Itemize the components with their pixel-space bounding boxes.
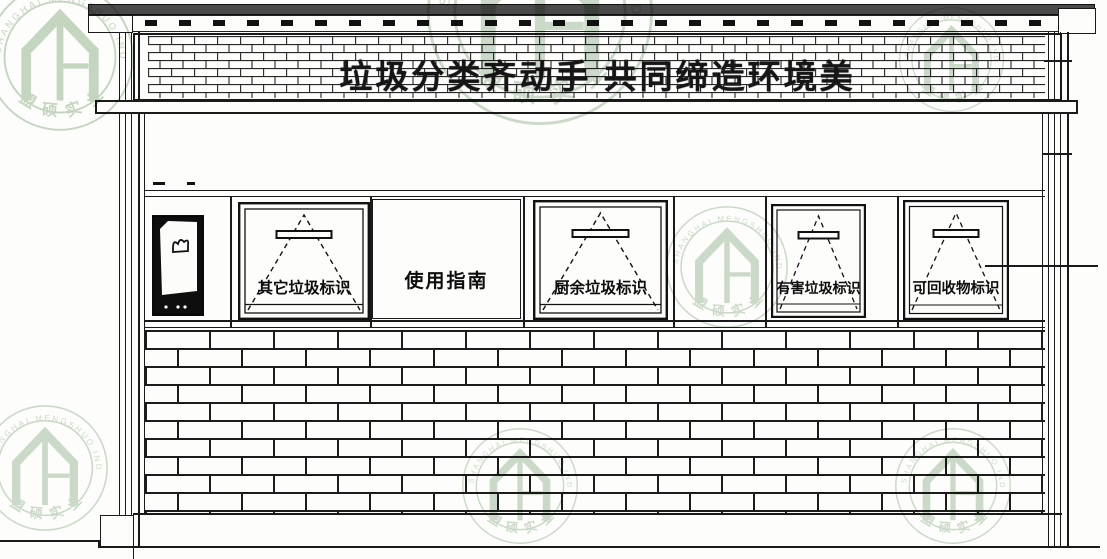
- window-other-waste: 其它垃圾标识: [238, 202, 370, 320]
- fascia-dash-row: [145, 20, 1050, 26]
- window-frame: [903, 200, 1009, 320]
- fascia-right-end-block: [1058, 8, 1096, 34]
- window-frame: [533, 200, 668, 320]
- window-handle: [277, 231, 332, 238]
- window-label: 可回收物标识: [903, 277, 1009, 298]
- panel-divider: [230, 197, 232, 327]
- window-hazardous-waste: 有害垃圾标识: [771, 204, 866, 318]
- ground-line: [98, 546, 1100, 548]
- plinth-edge-line: [133, 515, 135, 559]
- window-recyclable: 可回收物标识: [903, 200, 1009, 320]
- window-handle: [934, 230, 979, 237]
- upper-wall-dashes: [153, 182, 195, 185]
- pilaster-tie: [1042, 153, 1072, 155]
- panel-divider: [897, 197, 899, 327]
- lower-brick-wall: [145, 330, 1045, 514]
- frieze-band: 垃圾分类齐动手 共同缔造环境美: [133, 33, 1062, 101]
- band-bottom-line: [145, 320, 1045, 322]
- window-kitchen-waste: 厨余垃圾标识: [533, 200, 668, 320]
- panel-divider: [765, 197, 767, 327]
- upper-wall-line: [145, 196, 1045, 197]
- band-bottom-line: [145, 327, 1045, 329]
- plinth-step-block: [100, 515, 134, 548]
- cornice-ledge: [95, 100, 1078, 114]
- window-label: 其它垃圾标识: [238, 276, 370, 298]
- ground-step: [98, 540, 100, 548]
- chute-door-panel: [152, 215, 204, 316]
- window-label: 厨余垃圾标识: [533, 276, 668, 298]
- roof-slab: [88, 4, 1095, 15]
- guide-panel-label: 使用指南: [373, 266, 520, 293]
- window-label: 有害垃圾标识: [771, 278, 866, 298]
- window-handle: [573, 230, 629, 237]
- window-frame: [238, 202, 370, 320]
- window-handle: [799, 232, 839, 239]
- guide-panel: 使用指南: [372, 199, 521, 319]
- banner-slogan: 垃圾分类齐动手 共同缔造环境美: [135, 50, 1060, 98]
- panel-divider: [673, 197, 675, 327]
- ground-line-left: [0, 540, 100, 542]
- fascia-left-end-block: [88, 15, 133, 33]
- wall-base-line: [133, 513, 1062, 515]
- upper-wall-line: [145, 190, 1045, 191]
- window-frame: [771, 204, 866, 318]
- company-watermark-logo: [0, 404, 109, 532]
- panel-divider: [523, 197, 525, 327]
- elevation-drawing: SHANGHAI MENGSHUO INDUSTRIAL LIMITED COM…: [0, 0, 1107, 559]
- leader-line: [985, 265, 1098, 267]
- door-sign-plate: [160, 221, 197, 295]
